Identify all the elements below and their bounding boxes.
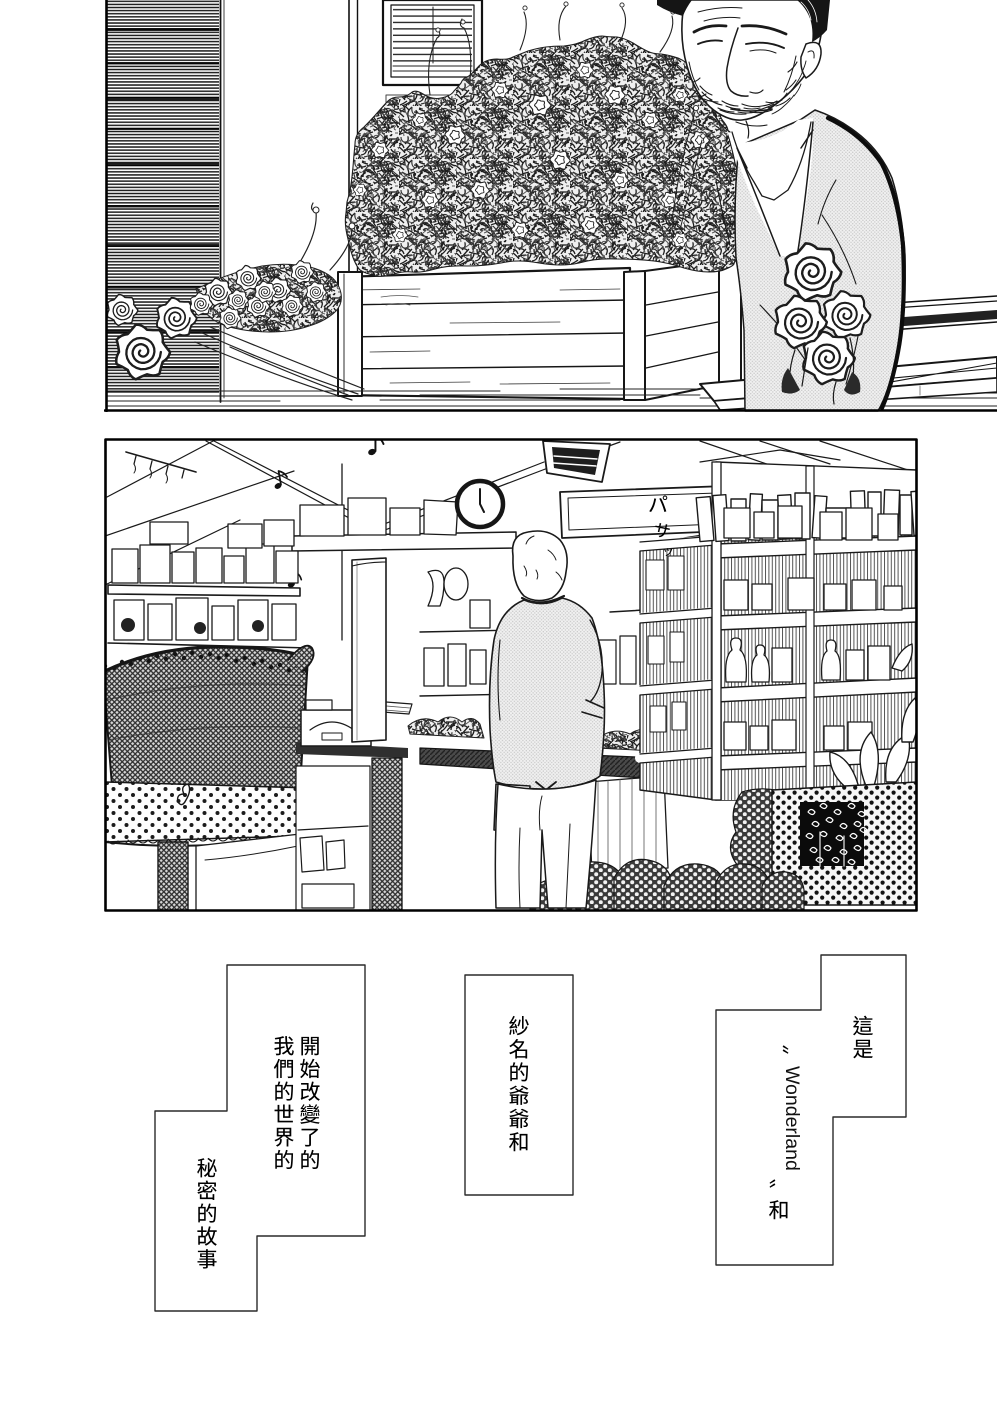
svg-text:Wonderland: Wonderland [781, 1066, 803, 1171]
